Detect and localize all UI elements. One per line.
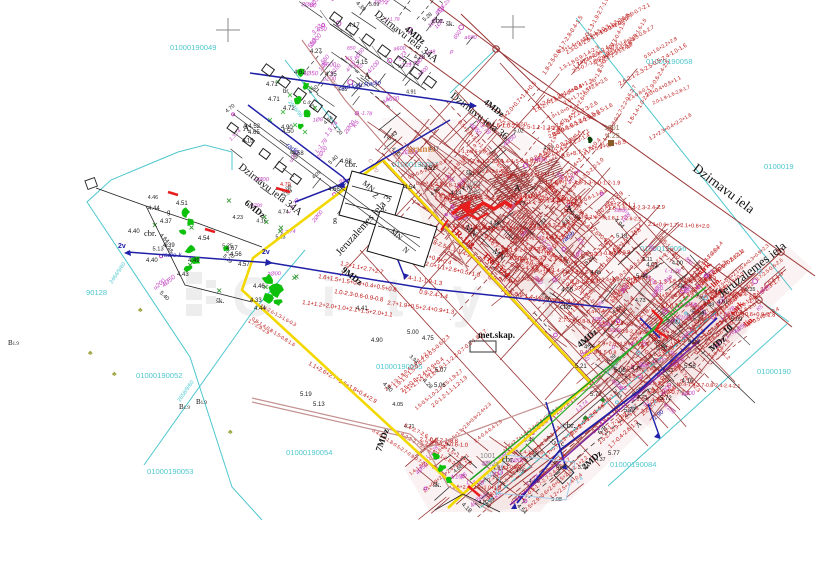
svg-text:4.43: 4.43 (177, 272, 189, 278)
svg-text:cbr.: cbr. (432, 15, 445, 25)
svg-text:1001: 1001 (466, 181, 482, 188)
svg-text:a600: a600 (385, 95, 400, 103)
svg-text:4.73: 4.73 (637, 395, 647, 401)
svg-text:650: 650 (347, 45, 356, 51)
svg-text:5.77: 5.77 (590, 392, 602, 398)
svg-text:4.67: 4.67 (226, 246, 238, 252)
svg-text:550: 550 (317, 27, 328, 34)
svg-text:4.71: 4.71 (268, 97, 280, 103)
svg-text:01000190049: 01000190049 (170, 43, 216, 52)
svg-text:4.58: 4.58 (292, 151, 304, 157)
svg-text:5.40: 5.40 (636, 274, 648, 280)
svg-text:4.54: 4.54 (198, 236, 210, 242)
svg-text:♣: ♣ (138, 307, 143, 314)
svg-text:4.44: 4.44 (254, 306, 266, 312)
svg-text:4.54: 4.54 (404, 185, 416, 191)
svg-text:4.00: 4.00 (672, 260, 684, 266)
svg-text:4.68: 4.68 (340, 159, 352, 165)
svg-text:4.01: 4.01 (646, 263, 658, 269)
svg-text:5.08: 5.08 (551, 497, 562, 503)
svg-text:met.skap.: met.skap. (478, 330, 515, 340)
svg-text:5.09: 5.09 (369, 2, 379, 8)
svg-text:4.39: 4.39 (163, 243, 175, 249)
svg-text:3.23: 3.23 (598, 321, 611, 329)
svg-text:♣: ♣ (228, 429, 233, 436)
svg-text:4.50: 4.50 (282, 129, 294, 135)
svg-text:2v: 2v (118, 243, 126, 250)
svg-text:šk.: šk. (433, 480, 442, 489)
svg-text:šk.: šk. (466, 168, 475, 177)
svg-text:4.40: 4.40 (146, 258, 158, 264)
svg-text:4.52: 4.52 (424, 166, 436, 172)
svg-text:1Ø8: 1Ø8 (313, 117, 324, 124)
svg-text:p: p (610, 344, 615, 351)
svg-text:A: A (364, 71, 371, 81)
svg-text:0100019: 0100019 (764, 162, 794, 171)
svg-text:radio k.: radio k. (162, 252, 184, 259)
svg-text:4.25: 4.25 (606, 133, 620, 140)
svg-text:cbr.: cbr. (560, 301, 573, 311)
svg-text:a600: a600 (464, 35, 477, 41)
svg-text:5.21: 5.21 (575, 364, 587, 370)
svg-text:2v: 2v (262, 249, 270, 256)
svg-text:4.14: 4.14 (450, 190, 461, 196)
svg-text:g: g (333, 215, 337, 224)
svg-text:5.72: 5.72 (660, 396, 672, 402)
svg-text:3.23: 3.23 (609, 328, 621, 335)
svg-text:4.73: 4.73 (635, 298, 646, 304)
svg-text:grunts: grunts (408, 145, 435, 155)
svg-text:4.18: 4.18 (490, 221, 500, 227)
svg-text:4.57: 4.57 (238, 262, 250, 268)
svg-text:01000190084: 01000190084 (610, 460, 656, 469)
svg-text:1001: 1001 (480, 453, 496, 460)
svg-text:L-1.78: L-1.78 (665, 268, 682, 275)
svg-text:5.77: 5.77 (608, 451, 620, 457)
svg-text:šk.: šk. (216, 296, 225, 305)
svg-text:4.51: 4.51 (717, 300, 728, 306)
svg-text:5.35: 5.35 (745, 287, 755, 293)
svg-text:5.56: 5.56 (684, 364, 696, 370)
svg-text:4.27: 4.27 (310, 49, 322, 55)
svg-text:4.40: 4.40 (128, 229, 140, 235)
svg-text:5.77: 5.77 (624, 408, 636, 414)
svg-text:4.45: 4.45 (591, 270, 602, 276)
svg-text:4.97: 4.97 (468, 189, 482, 196)
svg-text:cbr.: cbr. (144, 228, 157, 238)
svg-text:4.51: 4.51 (176, 201, 188, 207)
svg-text:1001: 1001 (604, 125, 620, 132)
svg-text:4.46: 4.46 (148, 195, 158, 201)
svg-text:5.07: 5.07 (435, 368, 447, 374)
svg-text:01000190054: 01000190054 (286, 448, 332, 457)
svg-text:a600: a600 (393, 46, 407, 53)
svg-text:4/100: 4/100 (450, 474, 466, 480)
svg-text:4.90: 4.90 (371, 338, 383, 344)
svg-text:♣: ♣ (112, 371, 117, 378)
svg-text:1.9-1.1-0.5-2.8: 1.9-1.1-0.5-2.8 (453, 149, 486, 156)
svg-text:5.06: 5.06 (434, 383, 446, 389)
svg-text:šk.: šk. (446, 19, 455, 28)
svg-text:4.17: 4.17 (348, 23, 360, 29)
svg-text:4.65: 4.65 (248, 130, 260, 136)
svg-text:1.9+2.6+1.6+2.3: 1.9+2.6+1.6+2.3 (472, 169, 508, 176)
svg-text:5.02: 5.02 (514, 129, 524, 135)
svg-text:5.10: 5.10 (656, 346, 667, 352)
svg-text:a600: a600 (682, 391, 696, 398)
svg-text:4.37: 4.37 (160, 219, 172, 225)
svg-text:4.15: 4.15 (356, 60, 368, 66)
svg-text:4.05: 4.05 (392, 402, 403, 408)
svg-text:4.23: 4.23 (233, 215, 244, 221)
svg-text:01000190: 01000190 (757, 367, 791, 376)
svg-text:4.62: 4.62 (294, 70, 306, 76)
svg-text:4.49: 4.49 (188, 258, 200, 264)
svg-text:cbr.: cbr. (502, 454, 515, 464)
svg-text:5.13: 5.13 (313, 402, 325, 408)
svg-text:01000190053: 01000190053 (147, 467, 193, 476)
svg-text:90128: 90128 (86, 288, 107, 297)
svg-text:5.09: 5.09 (688, 340, 700, 346)
svg-text:4.74: 4.74 (278, 210, 289, 216)
svg-text:4.35: 4.35 (325, 72, 337, 78)
svg-text:01000190052: 01000190052 (136, 371, 182, 380)
svg-text:4.41: 4.41 (356, 306, 368, 312)
svg-text:5.19: 5.19 (300, 392, 312, 398)
svg-text:5.18: 5.18 (616, 233, 627, 239)
svg-text:15.2x: 15.2x (482, 461, 500, 468)
svg-text:g: g (167, 210, 170, 216)
svg-text:cbr.: cbr. (563, 420, 576, 430)
svg-text:br.: br. (283, 89, 290, 95)
svg-text:5.08: 5.08 (614, 368, 626, 374)
svg-text:5.00: 5.00 (407, 330, 419, 336)
svg-text:♣: ♣ (88, 350, 93, 357)
svg-text:4.70: 4.70 (280, 182, 291, 188)
svg-text:4.75: 4.75 (422, 336, 434, 342)
svg-text:4.72: 4.72 (283, 106, 295, 112)
svg-text:c: c (303, 100, 306, 106)
svg-text:4.44: 4.44 (148, 206, 160, 212)
svg-text:4.71: 4.71 (266, 82, 278, 88)
svg-text:4.66: 4.66 (328, 187, 340, 193)
svg-text:4.56: 4.56 (561, 287, 573, 293)
svg-text:4.56: 4.56 (230, 252, 242, 258)
svg-text:šk.: šk. (678, 281, 687, 290)
svg-text:4.33: 4.33 (250, 298, 262, 304)
svg-text:4.46: 4.46 (253, 284, 265, 290)
